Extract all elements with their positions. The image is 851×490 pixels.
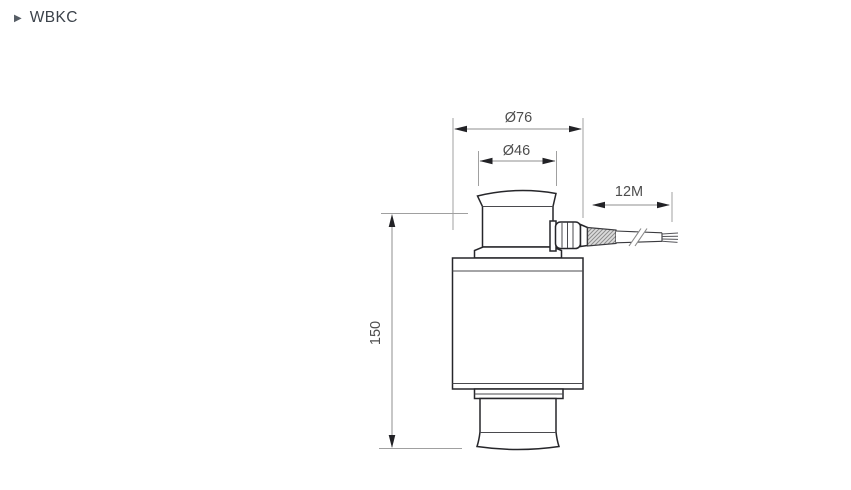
cap-flange [475, 247, 562, 258]
arrowhead-left-icon [480, 158, 493, 165]
arrowhead-left-icon [454, 126, 467, 133]
dimension-label-outer-diameter: Ø76 [505, 110, 532, 126]
main-column [453, 258, 584, 389]
dimension-label-cable-length: 12M [615, 184, 643, 200]
dimension-label-height: 150 [368, 321, 384, 345]
wire-strand [662, 241, 678, 242]
strain-relief-spring [588, 228, 617, 247]
arrowhead-right-icon [569, 126, 582, 133]
load-cell-technical-drawing: 150 Ø76 Ø46 12M [0, 0, 851, 490]
flared-foot [477, 399, 559, 450]
arrowhead-up-icon [389, 214, 396, 227]
dimension-top-diameter: Ø46 [479, 143, 557, 186]
dimension-cable-length: 12M [592, 184, 672, 222]
arrowhead-right-icon [543, 158, 556, 165]
wire-strand [662, 233, 678, 234]
gland-neck [581, 225, 588, 247]
arrowhead-left-icon [592, 202, 605, 209]
cable-assembly [550, 221, 678, 251]
top-cap [478, 191, 557, 247]
dimension-label-top-diameter: Ø46 [503, 143, 530, 159]
arrowhead-down-icon [389, 435, 396, 448]
arrowhead-right-icon [657, 202, 670, 209]
